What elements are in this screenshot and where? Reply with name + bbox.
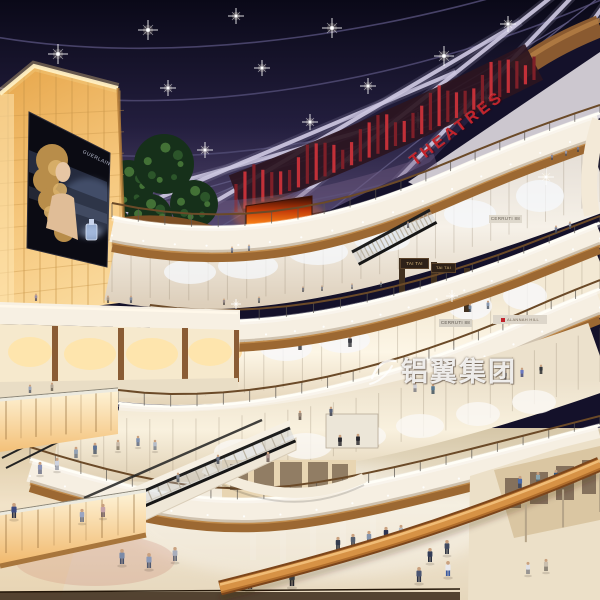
mall-atrium-rendering: THEATRES GUERLAIN TAI TAI TAI TAI CERRUT… [0, 0, 600, 600]
scene-illustration [0, 0, 600, 600]
